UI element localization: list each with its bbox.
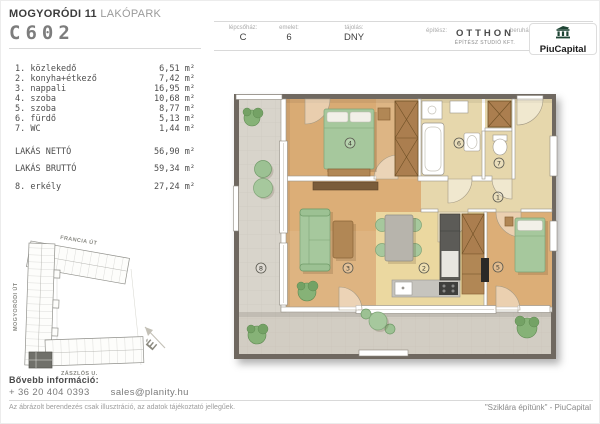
- room-row: 4. szoba10,68 m²: [15, 94, 195, 104]
- architect-subtitle: ÉPÍTÉSZ STUDIÓ KFT.: [446, 40, 524, 46]
- svg-text:7: 7: [497, 159, 501, 167]
- svg-text:5: 5: [496, 263, 500, 271]
- email-link[interactable]: sales@planity.hu: [111, 387, 189, 398]
- room-list: 1. közlekedő6,51 m² 2. konyha+étkező7,42…: [15, 64, 195, 192]
- svg-text:6: 6: [457, 139, 461, 147]
- total-gross-row: LAKÁS BRUTTÓ59,34 m²: [15, 164, 195, 174]
- room-row: 6. fürdő5,13 m²: [15, 114, 195, 124]
- svg-text:8: 8: [259, 264, 263, 272]
- room-row: 3. nappali16,95 m²: [15, 84, 195, 94]
- room-row: 7. WC1,44 m²: [15, 124, 195, 134]
- balcony-row: 8. erkély27,24 m²: [15, 182, 195, 192]
- phone-number: + 36 20 404 0393: [9, 387, 90, 398]
- contact-info: + 36 20 404 0393 sales@planity.hu: [9, 387, 189, 398]
- slogan-text: "Sziklára építünk" - PiuCapital: [485, 403, 591, 412]
- room3-tv-console: [313, 182, 378, 190]
- field-orientation-label: tájolás:: [319, 25, 389, 31]
- svg-text:2: 2: [422, 264, 426, 272]
- info-label: Bővebb információ:: [9, 375, 99, 385]
- field-floor-value: 6: [254, 32, 324, 43]
- project-title-bold: MOGYORÓDI 11: [9, 8, 97, 20]
- field-orientation: tájolás: DNY: [319, 22, 389, 43]
- svg-text:3: 3: [346, 264, 350, 272]
- disclaimer-text: Az ábrázolt berendezés csak illusztráció…: [9, 404, 235, 411]
- project-title-light: LAKÓPARK: [100, 8, 161, 20]
- svg-text:4: 4: [348, 139, 352, 147]
- site-highlighted-unit: [29, 352, 52, 368]
- total-net-row: LAKÁS NETTÓ56,90 m²: [15, 147, 195, 157]
- street-label-francia: FRANCIA ÚT: [60, 234, 98, 247]
- developer-logo: PiuCapital: [529, 23, 597, 55]
- north-arrow: É: [143, 327, 165, 353]
- svg-text:1: 1: [496, 193, 500, 201]
- field-floor-label: emelet:: [254, 25, 324, 31]
- north-letter: É: [143, 336, 160, 353]
- wardrobe-room4: [395, 101, 418, 176]
- piucapital-building-icon: [553, 26, 573, 39]
- unit-code: C602: [9, 22, 75, 44]
- datasheet-page: MOGYORÓDI 11 LAKÓPARK C602 lépcsőház: C …: [0, 0, 600, 424]
- project-title: MOGYORÓDI 11 LAKÓPARK: [9, 8, 161, 20]
- wc-toilet: [493, 135, 507, 155]
- street-label-mogyorodi: MOGYORÓDI ÚT: [11, 282, 19, 331]
- room5-tv: [481, 258, 489, 282]
- site-building-bottom-wing: [45, 337, 144, 366]
- room-row: 2. konyha+étkező7,42 m²: [15, 74, 195, 84]
- site-map: FRANCIA ÚT MOGYORÓDI ÚT ZÁSZLÓS U. É: [5, 227, 189, 381]
- room-row: 5. szoba8,77 m²: [15, 104, 195, 114]
- wardrobe-room5: [462, 214, 484, 294]
- footer-divider: [9, 400, 593, 401]
- architect-label: építész:: [426, 28, 447, 34]
- shaft: [488, 101, 511, 127]
- room3-coffee-table: [333, 221, 356, 261]
- developer-name: PiuCapital: [530, 44, 596, 55]
- floor-plan: 12345678: [206, 81, 596, 381]
- room3-sofa: [300, 209, 333, 274]
- field-floor: emelet: 6: [254, 22, 324, 43]
- header-fields: lépcsőház: C emelet: 6 tájolás: DNY épít…: [214, 21, 593, 51]
- room-row: 1. közlekedő6,51 m²: [15, 64, 195, 74]
- field-orientation-value: DNY: [319, 32, 389, 43]
- header-divider-left: [9, 48, 201, 49]
